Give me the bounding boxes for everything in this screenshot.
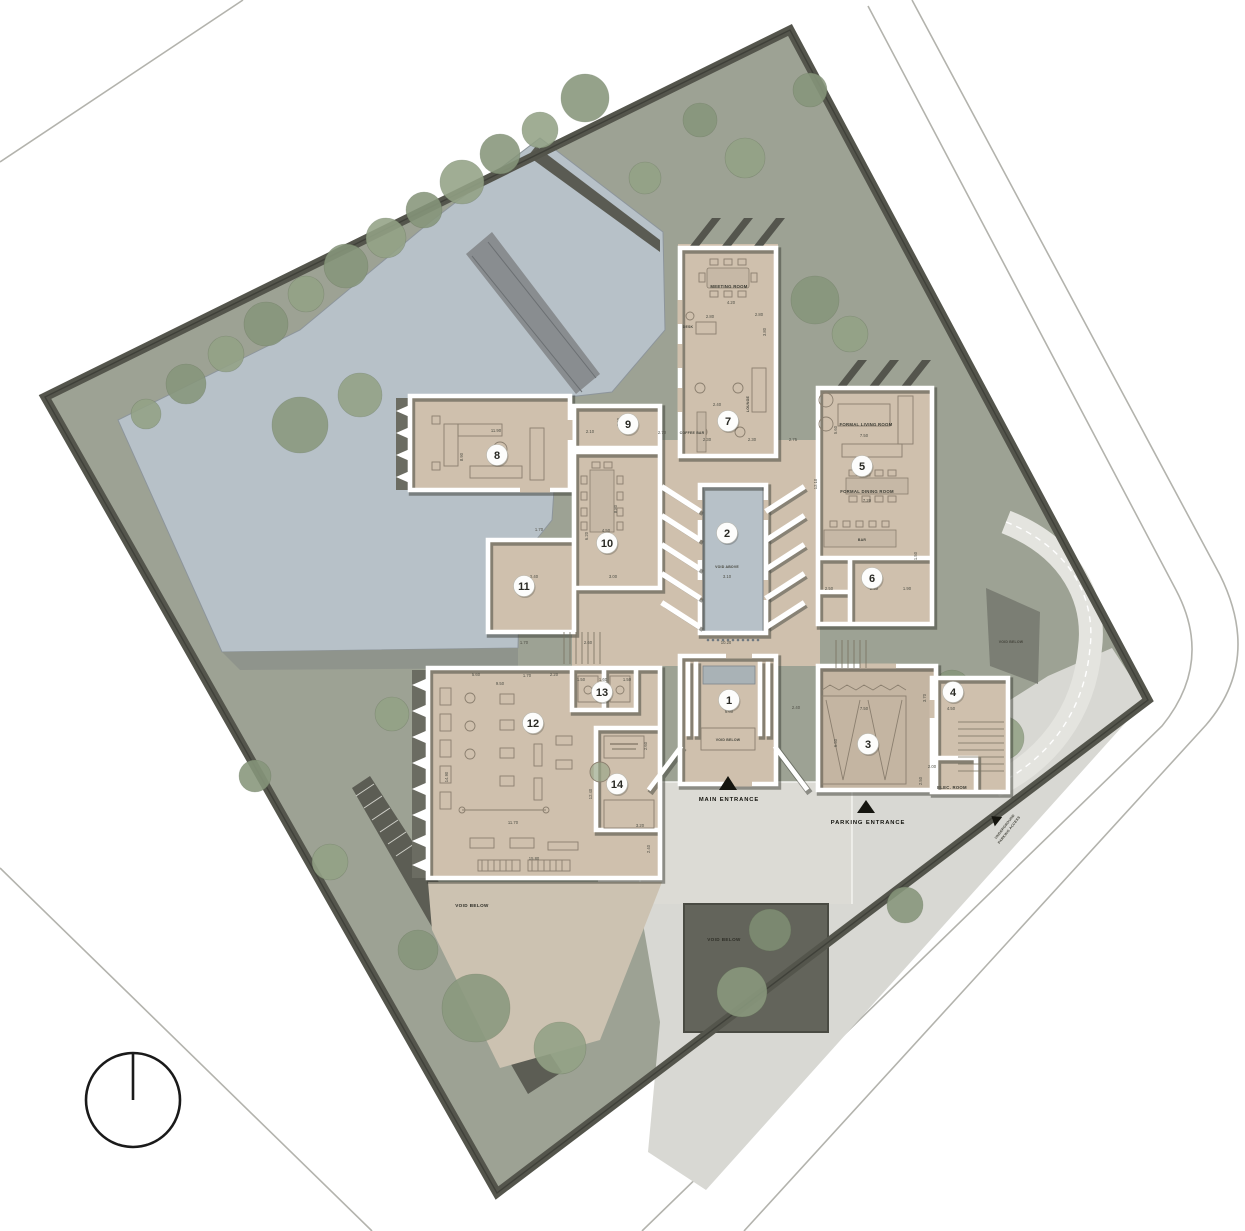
dimension-label: 3.80 [762,327,767,336]
svg-text:9: 9 [625,419,631,431]
svg-text:4: 4 [950,687,957,699]
dimension-label: 1.50 [623,677,632,682]
label-main-entrance: MAIN ENTRANCE [699,797,759,803]
dimension-label: 8.80 [613,504,618,513]
dimension-label: 1.70 [523,673,532,678]
svg-text:13: 13 [596,687,608,699]
label-void-below-entry: VOID BELOW [716,738,741,742]
svg-text:1: 1 [726,695,732,707]
dimension-label: 2.70 [658,430,667,435]
dimension-label: 9.50 [496,681,505,686]
svg-text:8: 8 [494,450,500,462]
dimension-label: 10.20 [721,640,732,645]
dimension-label: 1.50 [577,677,586,682]
label-elec-room: ELEC. ROOM [937,785,967,790]
dimension-label: 2.50 [918,776,923,785]
dimension-label: 3.20 [636,823,645,828]
label-void-below-ramp: VOID BELOW [999,640,1024,644]
dimension-label: 1.90 [903,586,912,591]
dimension-label: 2.75 [789,437,798,442]
dimension-label: 12.10 [813,478,818,489]
dimension-label: 7.20 [863,498,872,503]
dimension-label: 5.60 [833,425,838,434]
label-void-below-garden: VOID BELOW [707,937,741,942]
dimension-label: 2.30 [703,437,712,442]
svg-text:11: 11 [518,581,530,593]
dimension-label: 3.00 [609,574,618,579]
dimension-label: 2.00 [928,764,937,769]
label-formal-living: FORMAL LIVING ROOM [840,422,893,427]
label-meeting-room: MEETING ROOM [710,284,747,289]
dimension-label: 11.70 [508,820,519,825]
dimension-label: 15.80 [529,856,540,861]
dimension-label: 2.10 [586,429,595,434]
dimension-label: 12.40 [588,788,593,799]
north-indicator [86,1053,180,1147]
svg-text:2: 2 [724,528,730,540]
dimension-label: 7.50 [860,706,869,711]
dimension-label: 5.60 [472,672,481,677]
label-void-below-terrace: VOID BELOW [455,903,489,908]
svg-text:12: 12 [527,718,539,730]
dimension-label: 7.50 [860,433,869,438]
dimension-label: 3.70 [922,693,927,702]
dimension-label: 2.40 [646,844,651,853]
svg-text:14: 14 [611,779,624,791]
label-parking-entrance: PARKING ENTRANCE [831,820,906,826]
dimension-label: 2.60 [584,640,593,645]
dimension-label: 2.40 [792,705,801,710]
dimension-label: 1.60 [599,677,608,682]
svg-text:7: 7 [725,416,731,428]
svg-text:10: 10 [601,538,613,550]
label-void-above: VOID ABOVE [715,565,739,569]
svg-text:6: 6 [869,573,875,585]
dimension-label: 11.90 [491,428,502,433]
site-plan-canvas: MEETING ROOM DESK LOUNGE COFFEE BAR FORM… [0,0,1245,1231]
dimension-label: 2.20 [550,672,559,677]
dimension-label: 8.90 [459,452,464,461]
courtyard-pool [703,487,763,633]
dimension-label: 14.90 [444,771,449,782]
dimension-label: 2.30 [748,437,757,442]
label-coffee-bar: COFFEE BAR [680,431,705,435]
dimension-label: 3.10 [723,574,732,579]
label-formal-dining: FORMAL DINING ROOM [840,489,894,494]
dimension-label: 2.40 [713,402,722,407]
svg-text:3: 3 [865,739,871,751]
label-bar: BAR [858,538,866,542]
svg-text:5: 5 [859,461,865,473]
dimension-label: 2.80 [755,312,764,317]
dimension-label: 1.70 [535,527,544,532]
dimension-label: 2.80 [706,314,715,319]
dimension-label: 6.50 [833,738,838,747]
dimension-label: 6.20 [584,531,589,540]
label-lounge: LOUNGE [746,395,750,412]
dimension-label: 2.60 [643,741,648,750]
label-desk: DESK [683,325,694,329]
dimension-label: 2.50 [825,586,834,591]
dimension-label: 4.20 [727,300,736,305]
dimension-label: 1.50 [913,551,918,560]
dimension-label: 1.70 [520,640,529,645]
site-plan-drawing: MEETING ROOM DESK LOUNGE COFFEE BAR FORM… [0,0,1245,1231]
dimension-label: 4.50 [947,706,956,711]
